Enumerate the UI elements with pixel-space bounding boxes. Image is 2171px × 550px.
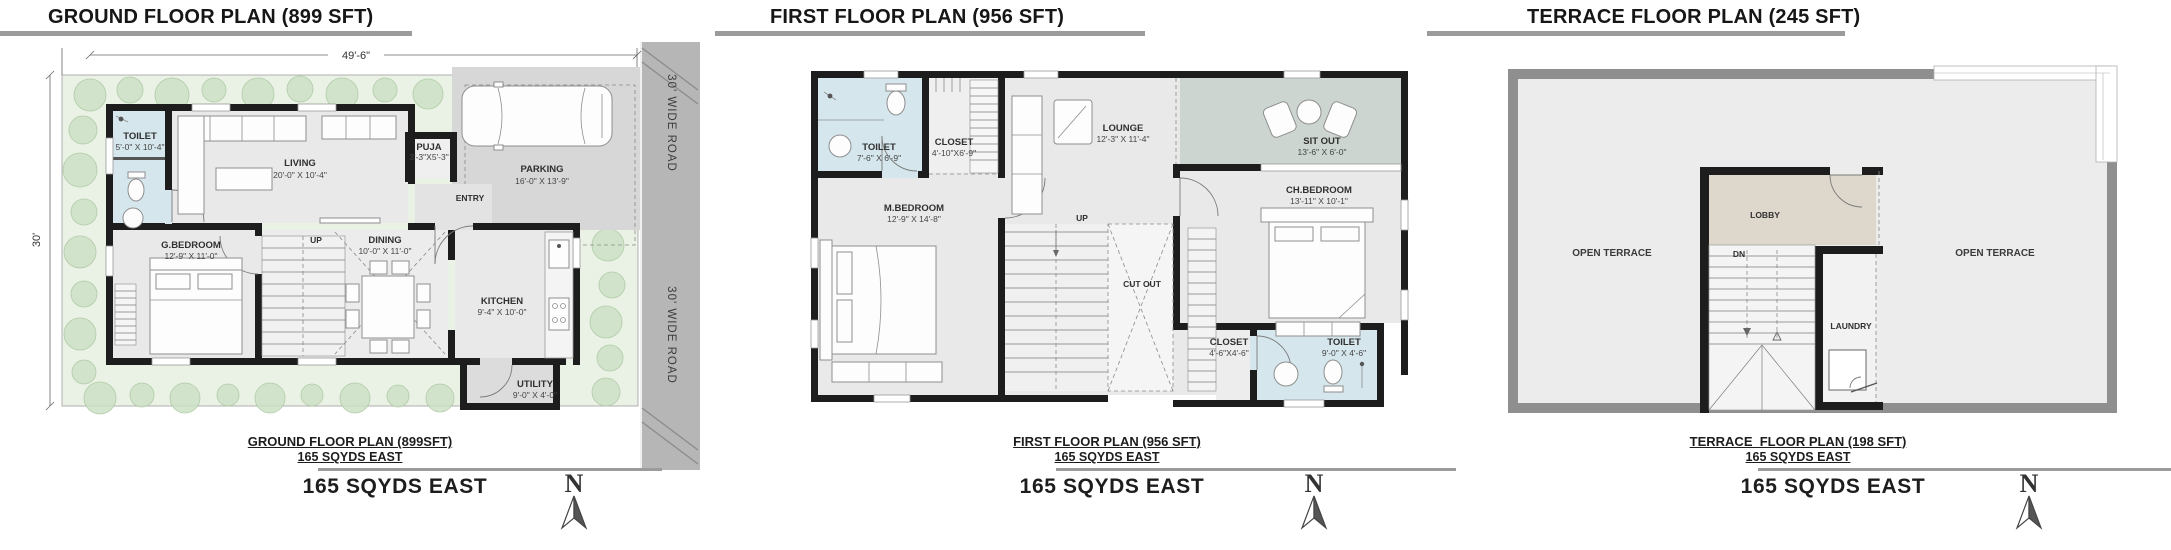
stairs-up: UP [262, 235, 345, 356]
living-size: 20'-0" X 10'-4" [273, 170, 327, 180]
sitout-size: 13'-6" X 6'-0" [1298, 147, 1347, 157]
north-letter: N [565, 469, 584, 498]
plot-width-dimension: 49'-6" [342, 50, 370, 62]
floor-plan-sheet: GROUND FLOOR PLAN (899 SFT) [0, 0, 2171, 550]
north-arrow-icon: N [2007, 468, 2051, 530]
stairs-up-label: UP [310, 235, 322, 245]
road-label-top: 30' WIDE ROAD [665, 74, 677, 172]
north-arrow-icon: N [552, 468, 596, 530]
washer-icon [1829, 350, 1866, 390]
terrace-caption-line2: 165 SQYDS EAST [1746, 450, 1851, 464]
stairs-down [1709, 245, 1815, 410]
north-letter: N [2020, 469, 2039, 498]
kitchen-size: 9'-4" X 10'-0" [478, 307, 527, 317]
room-lobby [1709, 175, 1876, 245]
north-arrow-icon: N [1292, 468, 1336, 530]
stairs-up-label: UP [1076, 213, 1088, 223]
toilet-size: 5'-0" X 10'-4" [116, 142, 165, 152]
dining-size: 10'-0" X 11'-0" [358, 246, 411, 256]
parking-label: PARKING [520, 164, 563, 175]
cutout-label: CUT OUT [1123, 279, 1162, 289]
open-terrace-left-label: OPEN TERRACE [1572, 248, 1652, 259]
lounge-label: LOUNGE [1103, 123, 1144, 134]
laundry-label: LAUNDRY [1830, 321, 1872, 331]
kitchen-label: KITCHEN [481, 296, 523, 307]
closet1-size: 4'-10"X6'-9" [932, 148, 976, 158]
living-label: LIVING [284, 158, 316, 169]
toilet-label: TOILET [123, 131, 157, 142]
dining-label: DINING [368, 235, 401, 246]
first-caption-bold: 165 SQYDS EAST [1020, 475, 1205, 499]
chbedroom-size: 13'-11" X 10'-1" [1290, 196, 1348, 206]
gbedroom-label: G.BEDROOM [161, 240, 221, 251]
toilet1-size: 7'-6" X 6'-9" [857, 153, 901, 163]
mbedroom-size: 12'-9" X 14'-8" [887, 214, 941, 224]
ground-floor-pane: GROUND FLOOR PLAN (899 SFT) [0, 0, 724, 550]
puja-size: 3'-3"X5'-3" [409, 152, 449, 162]
plot-height-dimension: 30' [31, 233, 43, 247]
north-letter: N [1305, 469, 1324, 498]
mbedroom-label: M.BEDROOM [884, 203, 944, 214]
first-caption-line1: FIRST FLOOR PLAN (956 SFT) [1013, 434, 1201, 449]
stairwell [1005, 224, 1108, 391]
car-icon [462, 82, 612, 150]
toilet1-label: TOILET [862, 142, 896, 153]
road-label-bottom: 30' WIDE ROAD [665, 286, 677, 384]
sitout-label: SIT OUT [1303, 136, 1341, 147]
kitchen-fixtures [545, 232, 573, 358]
open-terrace-right-label: OPEN TERRACE [1955, 248, 2035, 259]
first-caption-line2: 165 SQYDS EAST [1055, 450, 1160, 464]
room-toilet [113, 111, 165, 223]
chbedroom-furniture [1261, 208, 1373, 336]
ground-caption-bold: 165 SQYDS EAST [303, 475, 488, 499]
terrace-caption-line1: TERRACE FLOOR PLAN (198 SFT) [1690, 434, 1907, 449]
toilet2-size: 9'-0" X 4'-6" [1322, 348, 1366, 358]
closet2-size: 4'-6"X4'-6" [1209, 348, 1249, 358]
parking-size: 16'-0" X 13'-9" [515, 176, 569, 186]
first-floor-pane: FIRST FLOOR PLAN (956 SFT) [724, 0, 1448, 550]
toilet2-label: TOILET [1327, 337, 1361, 348]
entry-label: ENTRY [456, 193, 485, 203]
ground-caption-line2: 165 SQYDS EAST [298, 450, 403, 464]
room-cutout [1108, 224, 1173, 391]
lounge-size: 12'-3" X 11'-4" [1096, 134, 1149, 144]
caption-divider [1758, 468, 2171, 471]
lobby-label: LOBBY [1750, 210, 1780, 220]
gbedroom-size: 12'-9" X 11'-0" [164, 251, 217, 261]
stairs-down-label: DN [1733, 249, 1745, 259]
closet2-label: CLOSET [1210, 337, 1249, 348]
terrace-caption-bold: 165 SQYDS EAST [1741, 475, 1926, 499]
caption-divider [318, 468, 662, 471]
caption-divider [1056, 468, 1456, 471]
utility-label: UTILITY [517, 379, 554, 390]
road-strip: 30' WIDE ROAD 30' WIDE ROAD [640, 42, 700, 470]
ground-caption-line1: GROUND FLOOR PLAN (899SFT) [248, 434, 452, 449]
terrace-floor-pane: TERRACE FLOOR PLAN (245 SFT) [1447, 0, 2171, 550]
chbedroom-label: CH.BEDROOM [1286, 185, 1352, 196]
utility-size: 9'-0" X 4'-0" [513, 390, 557, 400]
closet1-label: CLOSET [935, 137, 974, 148]
